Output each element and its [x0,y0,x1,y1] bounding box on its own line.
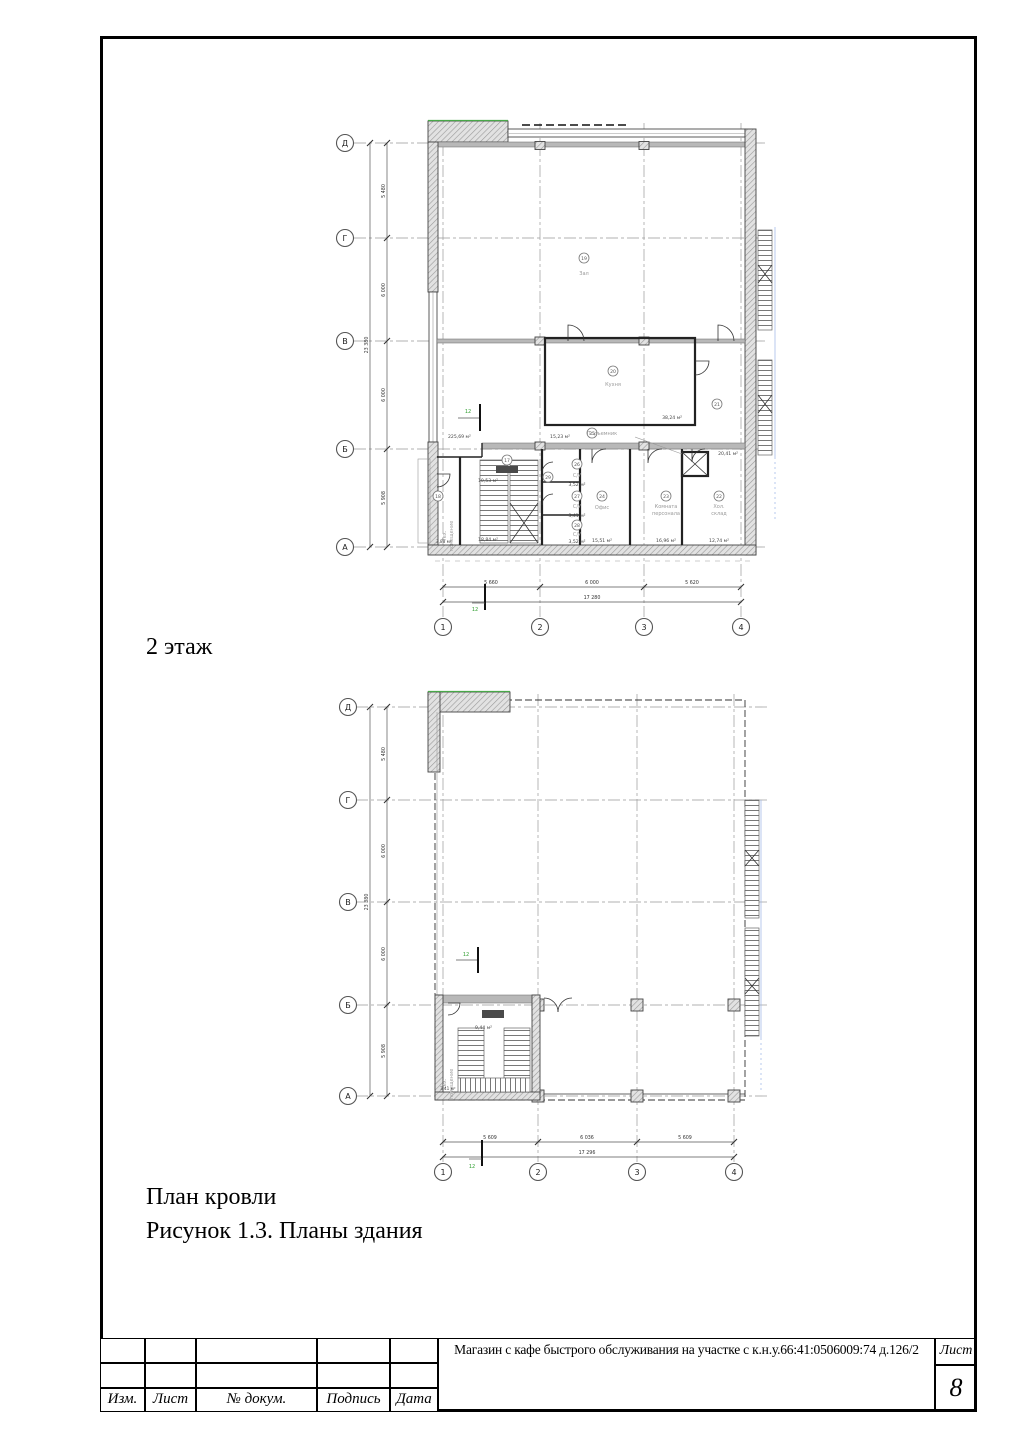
room-area: 9,44 м² [475,1025,492,1031]
room-number: 20 [610,369,616,375]
axis-label: В [342,337,348,346]
axis-bubbles-bottom: 1 2 3 4 [435,1164,743,1181]
room-name: С/У [573,532,581,538]
room-name: Зал [579,271,588,277]
axis-label: 1 [440,1168,445,1177]
room-area: 16,96 м² [656,538,676,544]
axis-label: 3 [634,1168,639,1177]
dimension: 5 609 [483,1135,497,1141]
title-block-cell [390,1363,438,1388]
building-walls [418,121,756,562]
drawing-sheet: 19 Зал 225,69 м² 20 Кухня 38,24 м² 21 20… [0,0,1024,1448]
dimension-total: 23 380 [364,894,370,911]
roof-caption: План кровли [146,1184,276,1211]
dimension: 5 660 [484,580,498,586]
dimension: 6 000 [381,947,387,961]
stair-label-chip [496,466,518,473]
room-name: Офис [595,505,609,511]
room-area: 3,41 м² [440,1086,456,1091]
room-area: 20,41 м² [718,451,738,457]
room-name: Кухня [605,382,621,388]
dimension: 5 480 [381,184,387,198]
title-block-cell [145,1338,196,1363]
title-block-label-izm: Изм. [100,1388,145,1412]
room-number: 27 [574,494,580,500]
axis-label: Д [342,139,348,148]
room-number: 22 [716,494,722,500]
axis-label: А [345,1092,351,1101]
grid-axes [356,694,768,1162]
dimension: 6 000 [381,283,387,297]
left-dimensions: 5 480 6 000 6 000 5 908 23 380 [364,140,390,550]
room-number: 24 [599,494,605,500]
exterior-stair [745,800,761,1092]
axis-label: Б [342,445,348,454]
room-area: 15,51 м² [592,538,612,544]
dimension-total: 23 380 [364,337,370,354]
room-name: С/У [573,473,581,479]
room-area: 3,52 м² [569,539,586,545]
room-area: 225,69 м² [448,434,471,440]
room-area: 18,84 м² [478,537,498,543]
room-number: 23 [663,494,669,500]
room-name: склад [711,511,727,517]
axis-label: А [342,543,348,552]
floor2-caption: 2 этаж [146,634,212,661]
section-mark-group: 12 [456,947,478,973]
title-block-label-list: Лист [145,1388,196,1412]
room-area: 12,74 м² [709,538,729,544]
figure-caption: Рисунок 1.3. Планы здания [146,1218,423,1245]
room-area: 3,88 м² [436,539,452,544]
room-name: Подъемник [587,431,617,437]
title-block-label-ndokum: № докум. [196,1388,317,1412]
project-title-cell: Магазин с кафе быстрого обслуживания на … [438,1338,935,1412]
axis-label: В [345,898,351,907]
exterior-stair [758,227,775,520]
room-labels: 19 Зал 225,69 м² 20 Кухня 38,24 м² 21 20… [433,253,738,551]
title-block-cell [196,1338,317,1363]
room-area: 10,53 м² [478,478,498,484]
room-name: персонала [652,511,680,517]
roof-plan-drawing: 9,44 м² Тех. помещение 3,41 м² 12 Д Г В … [330,680,800,1195]
sheet-label-cell: Лист [935,1338,977,1365]
title-block-cell [317,1363,390,1388]
title-block-cell [390,1338,438,1363]
dimension: 5 609 [678,1135,692,1141]
room-area: 15,23 м² [550,434,570,440]
title-block-cell [196,1363,317,1388]
stair-enclosure: 9,44 м² Тех. помещение 3,41 м² [435,995,572,1100]
axis-label: Б [345,1001,351,1010]
axis-label: 4 [738,623,743,632]
axis-label: 1 [440,623,445,632]
axis-label: 2 [535,1168,540,1177]
room-name: Комната [655,504,678,510]
room-name: С/У [573,504,581,510]
dimension: 6 000 [381,844,387,858]
dimension: 6 036 [580,1135,594,1141]
dimension-total: 17 296 [579,1150,596,1156]
axis-label: 2 [537,623,542,632]
section-mark: 12 [469,1164,475,1170]
axis-bubbles-bottom: 1 2 3 4 [435,619,750,636]
room-area: 3,52 м² [569,482,586,488]
title-block: Изм. Лист № докум. Подпись Дата Магазин … [100,1338,977,1412]
dimension: 5 480 [381,747,387,761]
section-mark: 12 [472,607,478,613]
room-number: 19 [581,256,587,262]
title-block-cell [317,1338,390,1363]
room-area: 38,24 м² [662,415,682,421]
dimension: 5 620 [685,580,699,586]
room-number: 21 [714,402,720,408]
room-number: 28 [574,523,580,529]
room-number: 26 [574,462,580,468]
section-mark: 12 [465,409,471,415]
axis-bubbles-left: Д Г В Б А [337,135,354,556]
room-name: помещение [449,1069,455,1100]
title-block-cell [100,1363,145,1388]
dimension: 6 000 [381,388,387,402]
axis-label: Г [343,234,348,243]
sheet-number-cell: 8 [935,1365,977,1412]
bottom-dimensions: 5 660 6 000 5 620 17 280 12 [440,580,744,613]
dimension: 5 908 [381,491,387,505]
axis-label: 4 [731,1168,736,1177]
title-block-cell [145,1363,196,1388]
title-block-label-data: Дата [390,1388,438,1412]
axis-label: Г [346,796,351,805]
dimension: 6 000 [585,580,599,586]
room-name: Хол. [713,504,725,510]
room-number: 18 [435,494,441,500]
axis-label: Д [345,703,351,712]
room-number: 17 [504,458,510,464]
floor2-plan-drawing: 19 Зал 225,69 м² 20 Кухня 38,24 м² 21 20… [330,105,800,650]
room-name: помещение [449,521,455,552]
room-number: 29 [545,475,551,481]
title-block-cell [100,1338,145,1363]
title-block-label-podpis: Подпись [317,1388,390,1412]
axis-bubbles-left: Д Г В Б А [340,699,357,1105]
room-area: 3,41 м² [569,513,586,519]
bottom-dimensions: 5 609 6 036 5 609 17 296 12 [440,1135,737,1170]
section-mark: 12 [463,952,469,958]
dimension: 5 908 [381,1044,387,1058]
stair-label-chip [482,1010,504,1018]
axis-label: 3 [641,623,646,632]
left-dimensions: 5 480 6 000 6 000 5 908 23 380 [364,704,390,1099]
dimension-total: 17 280 [584,595,601,601]
